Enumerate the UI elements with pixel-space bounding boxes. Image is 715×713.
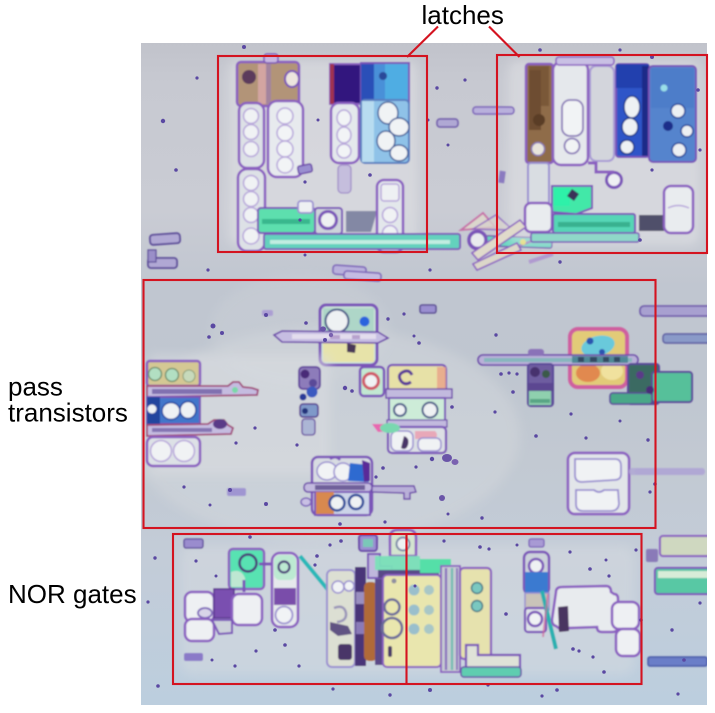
svg-text:NOR gates: NOR gates [8, 579, 137, 609]
svg-text:latches: latches [422, 0, 504, 30]
svg-text:transistors: transistors [8, 398, 128, 428]
